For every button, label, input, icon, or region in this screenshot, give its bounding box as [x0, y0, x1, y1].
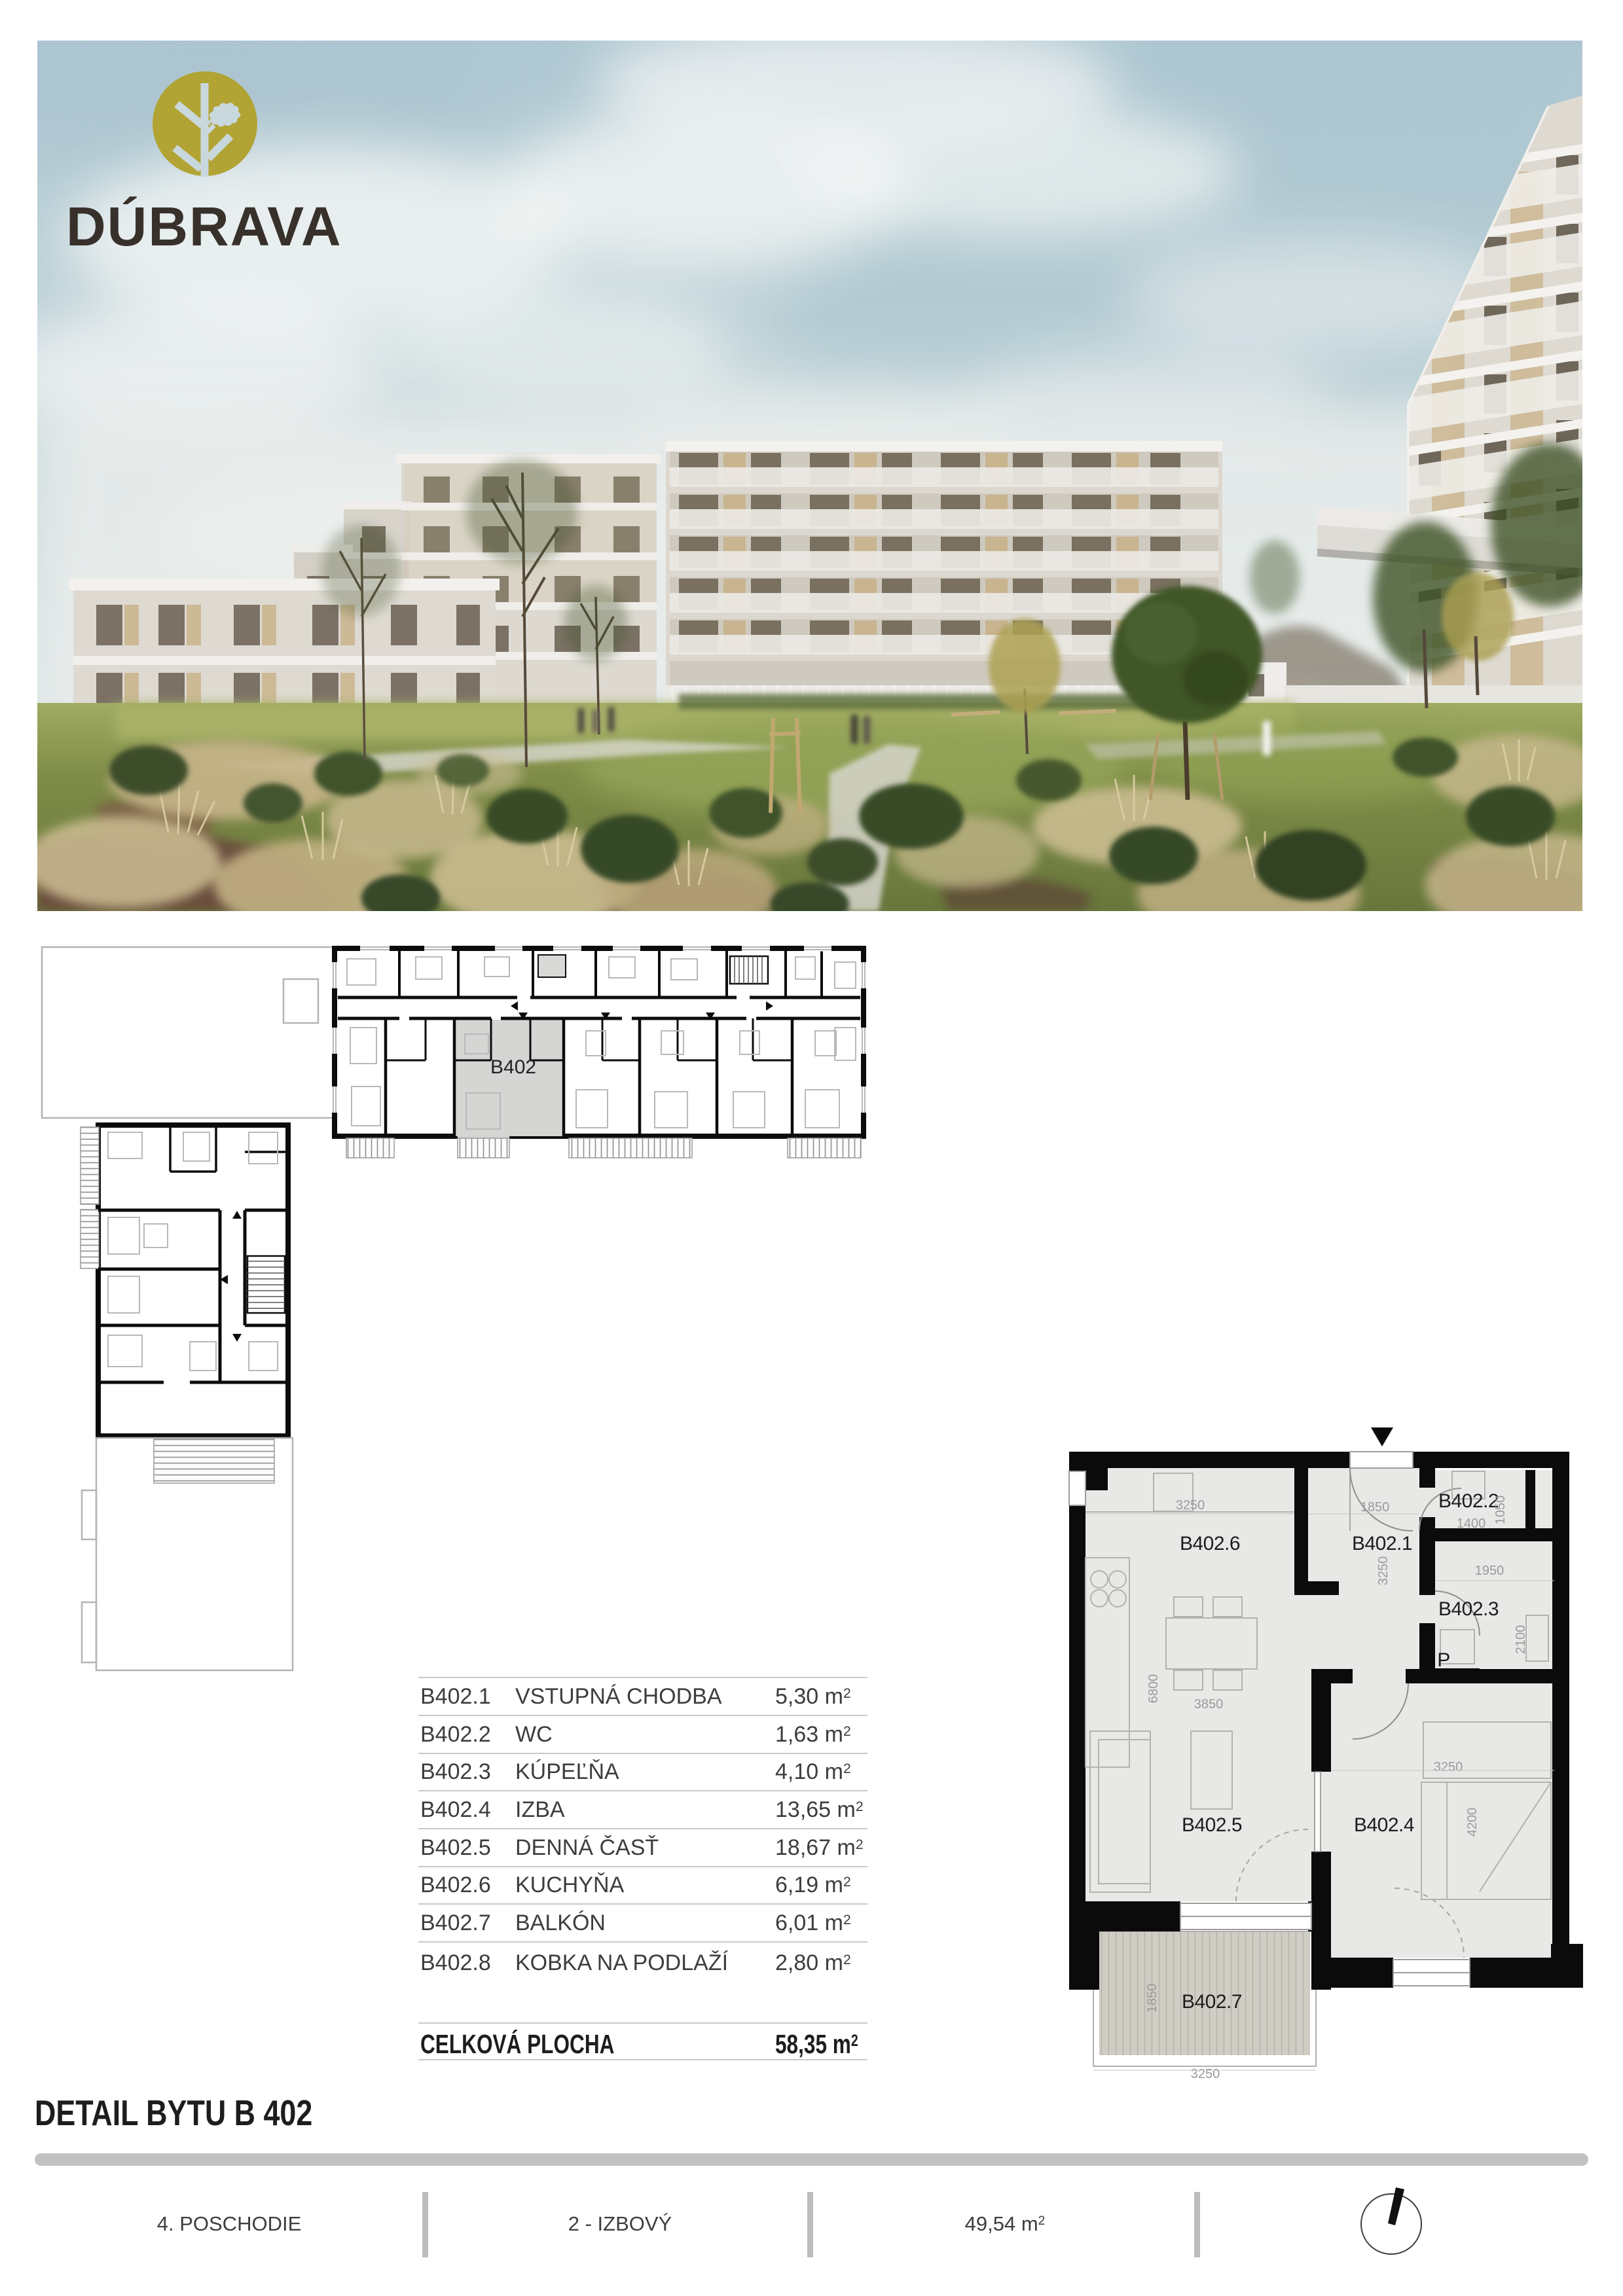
svg-text:DÚBRAVA: DÚBRAVA	[66, 196, 342, 257]
svg-text:3250: 3250	[1176, 1498, 1205, 1513]
svg-text:1950: 1950	[1475, 1564, 1504, 1578]
svg-text:B402.3: B402.3	[1438, 1598, 1499, 1620]
svg-text:3850: 3850	[1194, 1697, 1224, 1712]
svg-text:B402.6: B402.6	[1180, 1533, 1240, 1554]
svg-text:3250: 3250	[1434, 1760, 1463, 1774]
svg-text:6800: 6800	[1146, 1674, 1161, 1704]
svg-text:B402.2: B402.2	[1438, 1490, 1499, 1512]
svg-text:1850: 1850	[1145, 1984, 1159, 2013]
svg-text:1850: 1850	[1360, 1500, 1390, 1515]
svg-text:B402.4: B402.4	[1354, 1814, 1414, 1836]
svg-text:3250: 3250	[1376, 1556, 1391, 1586]
svg-text:B402: B402	[490, 1056, 536, 1078]
svg-text:P: P	[1437, 1649, 1450, 1671]
svg-text:4200: 4200	[1465, 1808, 1480, 1837]
svg-text:B402.7: B402.7	[1182, 1991, 1242, 2013]
svg-text:B402.1: B402.1	[1352, 1533, 1412, 1554]
svg-text:B402.5: B402.5	[1182, 1814, 1242, 1836]
svg-text:2100: 2100	[1514, 1625, 1528, 1655]
svg-text:1400: 1400	[1457, 1516, 1486, 1531]
svg-text:1050: 1050	[1493, 1496, 1508, 1525]
svg-text:3250: 3250	[1191, 2067, 1220, 2081]
